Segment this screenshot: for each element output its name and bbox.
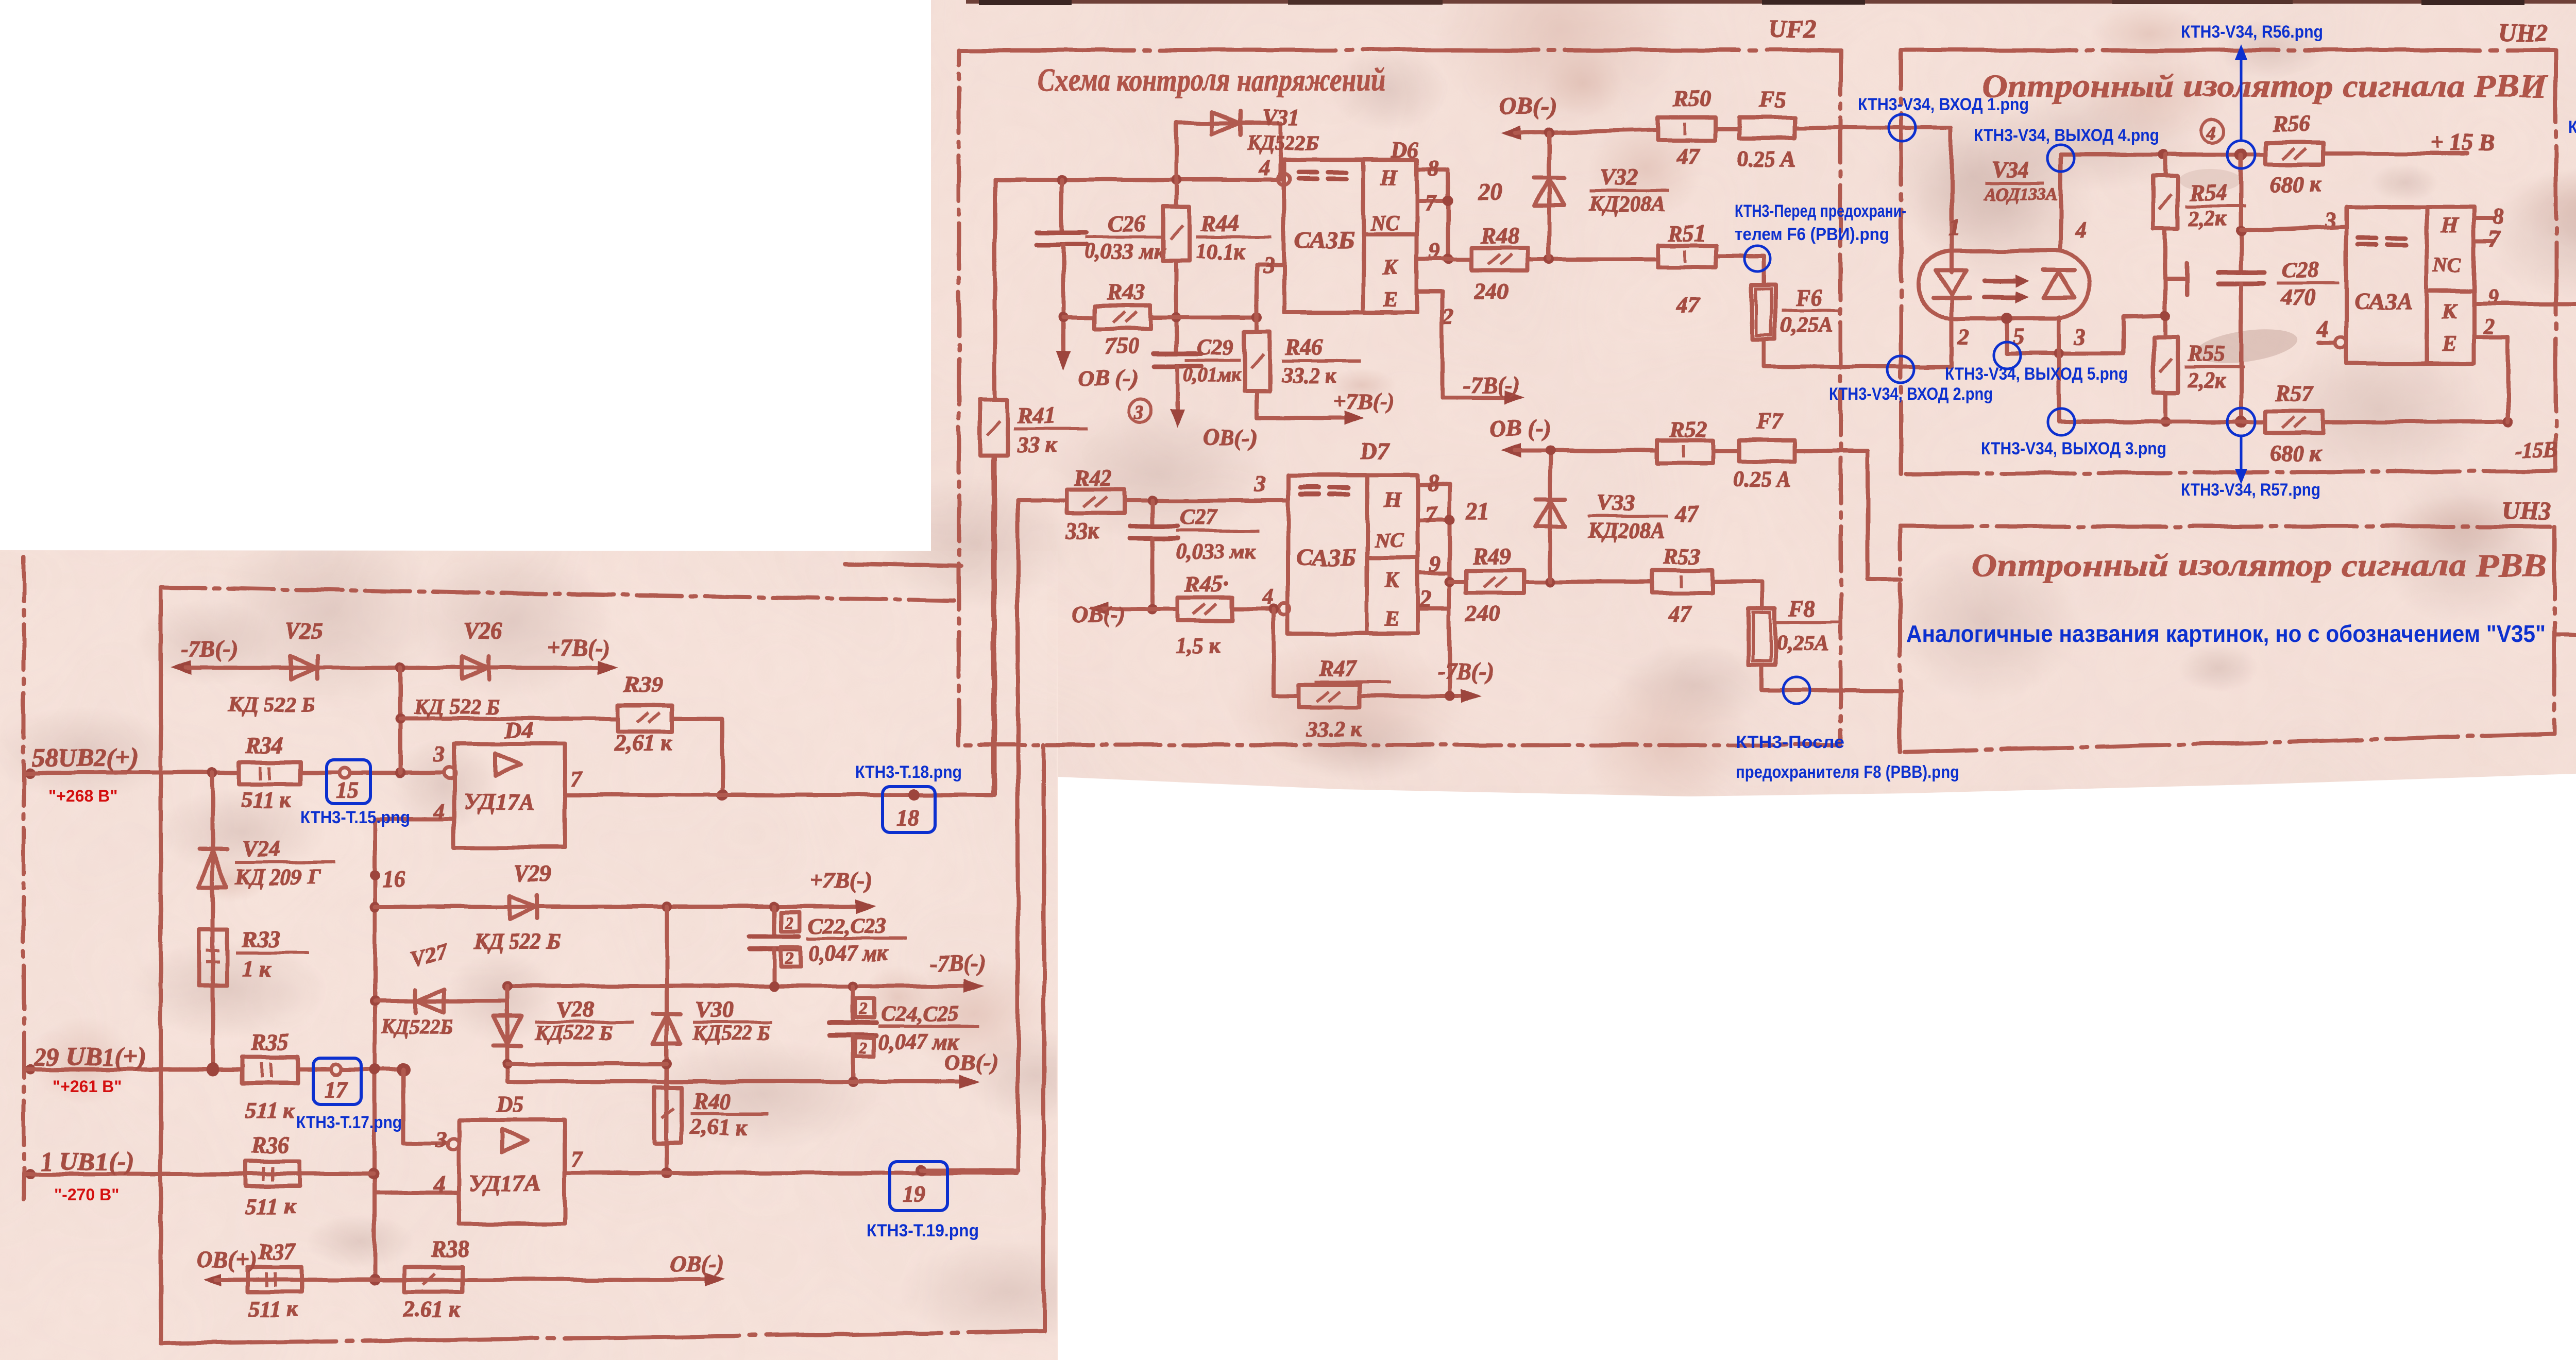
svg-text:D4: D4 [505, 718, 533, 743]
svg-text:33.2 к: 33.2 к [1281, 364, 1337, 387]
svg-text:2,61 к: 2,61 к [690, 1114, 748, 1140]
svg-text:R54: R54 [2189, 180, 2227, 205]
svg-text:V26: V26 [464, 618, 501, 643]
svg-text:3: 3 [2074, 324, 2086, 349]
svg-text:D6: D6 [1391, 137, 1419, 162]
svg-text:2,2к: 2,2к [2188, 207, 2228, 231]
svg-text:КД522Б: КД522Б [381, 1015, 453, 1038]
svg-text:Оптронный изолятор сигнала РВИ: Оптронный изолятор сигнала РВИ [1981, 69, 2548, 104]
svg-text:2: 2 [785, 913, 793, 932]
svg-text:R37: R37 [257, 1239, 296, 1264]
svg-text:3: 3 [1255, 471, 1266, 497]
svg-text:ОВ(-): ОВ(-) [1500, 93, 1556, 120]
svg-text:+7В(-): +7В(-) [1333, 389, 1395, 414]
svg-text:10.1к: 10.1к [1196, 240, 1246, 264]
svg-text:0,25А: 0,25А [1776, 632, 1829, 655]
svg-text:5: 5 [2012, 324, 2024, 349]
svg-text:4: 4 [1259, 155, 1270, 180]
svg-text:КД 522 Б: КД 522 Б [473, 930, 561, 954]
svg-text:R48: R48 [1481, 223, 1519, 248]
svg-text:33 к: 33 к [1017, 432, 1058, 457]
svg-text:R47: R47 [1318, 656, 1357, 681]
svg-text:0,033 мк: 0,033 мк [1176, 540, 1257, 564]
svg-text:F7: F7 [1755, 409, 1783, 434]
svg-text:V24: V24 [242, 836, 280, 861]
svg-text:Оптронный изолятор сигнала РВВ: Оптронный изолятор сигнала РВВ [1971, 548, 2547, 583]
svg-text:СА3Б: СА3Б [1296, 544, 1357, 571]
svg-text:511 к: 511 к [248, 1297, 299, 1322]
svg-text:КТН3-Т.18.png: КТН3-Т.18.png [855, 762, 962, 782]
svg-text:240: 240 [1474, 279, 1509, 304]
svg-text:R56: R56 [2272, 111, 2310, 136]
svg-text:КТН3-V34, ВХОД 1.png: КТН3-V34, ВХОД 1.png [1858, 95, 2029, 114]
svg-text:F5: F5 [1758, 87, 1785, 112]
svg-text:КД522Б: КД522Б [1246, 131, 1319, 154]
svg-text:750: 750 [1105, 333, 1139, 359]
svg-text:2,61 к: 2,61 к [615, 730, 673, 755]
svg-text:ОВ(+): ОВ(+) [197, 1247, 257, 1272]
svg-text:2: 2 [859, 1038, 868, 1057]
svg-text:КТН3-ВЫХОД 16 - РВИ.png: КТН3-ВЫХОД 16 - РВИ.png [2568, 117, 2576, 137]
svg-text:С24,С25: С24,С25 [881, 1002, 959, 1026]
svg-text:4: 4 [433, 799, 445, 824]
svg-text:NC: NC [2432, 253, 2462, 277]
svg-text:КТН3-Перед предохрани-: КТН3-Перед предохрани- [1735, 201, 1906, 221]
svg-text:0.25 А: 0.25 А [1737, 147, 1795, 171]
svg-text:2.61 к: 2.61 к [403, 1297, 461, 1322]
svg-text:16: 16 [382, 866, 405, 891]
svg-text:29 UB1(+): 29 UB1(+) [33, 1042, 147, 1071]
svg-text:V33: V33 [1597, 490, 1635, 515]
svg-text:3: 3 [1263, 253, 1275, 278]
svg-text:33к: 33к [1065, 518, 1100, 543]
svg-text:R53: R53 [1663, 543, 1701, 569]
svg-text:R35: R35 [251, 1030, 289, 1055]
svg-text:К: К [1382, 256, 1398, 279]
svg-text:R55: R55 [2187, 341, 2225, 366]
svg-text:R39: R39 [624, 672, 662, 698]
svg-text:7: 7 [1425, 190, 1437, 215]
svg-text:-7В(-): -7В(-) [1463, 372, 1520, 398]
svg-text:3: 3 [435, 1127, 447, 1152]
svg-text:КТН3-V34, R57.png: КТН3-V34, R57.png [2181, 480, 2320, 500]
svg-text:КД 522 Б: КД 522 Б [228, 693, 315, 717]
svg-text:КТН3-После: КТН3-После [1736, 733, 1844, 752]
svg-text:ОВ (-): ОВ (-) [1489, 415, 1551, 441]
svg-text:0,033 мк: 0,033 мк [1085, 240, 1166, 264]
svg-text:R36: R36 [251, 1133, 289, 1158]
svg-text:511 к: 511 к [245, 1098, 296, 1123]
svg-text:V28: V28 [556, 997, 594, 1022]
svg-text:КТН3-V34, ВЫХОД 4.png: КТН3-V34, ВЫХОД 4.png [1974, 126, 2159, 145]
svg-text:D5: D5 [496, 1092, 524, 1117]
svg-text:15: 15 [336, 777, 359, 803]
svg-text:-7В(-): -7В(-) [929, 950, 986, 976]
svg-text:+ 15 В: + 15 В [2431, 129, 2496, 156]
svg-text:58UB2(+): 58UB2(+) [32, 743, 138, 772]
svg-text:К: К [2442, 300, 2458, 324]
svg-text:V29: V29 [514, 861, 551, 886]
svg-text:2: 2 [1419, 586, 1431, 611]
svg-text:17: 17 [325, 1077, 348, 1102]
svg-text:4: 4 [433, 1172, 445, 1197]
svg-text:КТН3-Т.19.png: КТН3-Т.19.png [867, 1221, 979, 1240]
svg-text:F6: F6 [1794, 285, 1821, 310]
svg-text:7: 7 [571, 1146, 583, 1171]
svg-text:4: 4 [2075, 217, 2087, 242]
svg-text:КД522 Б: КД522 Б [535, 1021, 613, 1044]
svg-text:R38: R38 [431, 1237, 469, 1262]
svg-text:КД208А: КД208А [1587, 519, 1664, 543]
svg-text:8: 8 [1427, 156, 1438, 181]
svg-text:УД17А: УД17А [464, 789, 535, 815]
svg-text:1 к: 1 к [242, 957, 272, 982]
svg-text:Н: Н [1383, 489, 1401, 513]
svg-text:0.25 А: 0.25 А [1733, 468, 1791, 491]
svg-text:2: 2 [785, 948, 793, 967]
svg-text:R49: R49 [1472, 543, 1511, 569]
svg-text:Аналогичные названия картинок,: Аналогичные названия картинок, но с обоз… [1906, 620, 2546, 647]
svg-text:F8: F8 [1788, 596, 1815, 621]
svg-text:7: 7 [1425, 502, 1437, 528]
svg-text:R51: R51 [1668, 221, 1706, 246]
svg-text:3: 3 [1134, 402, 1144, 422]
svg-text:СА3А: СА3А [2354, 288, 2413, 314]
svg-text:R33: R33 [242, 927, 280, 952]
svg-text:-15В: -15В [2515, 439, 2558, 463]
svg-text:КД 209 Г: КД 209 Г [234, 865, 321, 889]
svg-text:UF2: UF2 [1768, 14, 1817, 43]
svg-text:1 UB1(-): 1 UB1(-) [40, 1147, 134, 1176]
svg-text:NC: NC [1374, 529, 1404, 552]
svg-text:47: 47 [1669, 601, 1693, 626]
svg-text:Схема контроля напряжений: Схема контроля напряжений [1038, 63, 1385, 98]
svg-text:2: 2 [2483, 314, 2495, 339]
svg-text:20: 20 [1478, 179, 1502, 205]
svg-text:240: 240 [1465, 601, 1500, 626]
svg-text:С29: С29 [1196, 334, 1234, 360]
svg-text:Е: Е [2442, 333, 2456, 356]
svg-text:21: 21 [1465, 498, 1489, 524]
svg-text:2: 2 [859, 1000, 868, 1018]
svg-text:С22,С23: С22,С23 [808, 915, 886, 939]
svg-text:+7В(-): +7В(-) [548, 635, 609, 660]
svg-text:4: 4 [2206, 123, 2216, 143]
svg-text:9: 9 [1429, 551, 1440, 576]
svg-text:-7В(-): -7В(-) [1437, 659, 1494, 684]
svg-text:Н: Н [1380, 166, 1398, 190]
svg-text:ОВ(-): ОВ(-) [944, 1049, 998, 1075]
svg-text:680 к: 680 к [2270, 172, 2322, 197]
svg-text:+7В(-): +7В(-) [810, 868, 872, 893]
svg-text:2: 2 [1957, 324, 1969, 349]
svg-text:С26: С26 [1108, 211, 1145, 236]
svg-text:АОД133А: АОД133А [1984, 185, 2058, 204]
svg-text:С27: С27 [1180, 504, 1218, 530]
svg-text:2,2к: 2,2к [2187, 369, 2227, 393]
svg-text:СА3Б: СА3Б [1294, 227, 1354, 254]
svg-text:КД 522 Б: КД 522 Б [414, 695, 501, 719]
svg-text:R34: R34 [244, 733, 282, 758]
svg-text:R50: R50 [1673, 86, 1711, 111]
svg-text:КД522 Б: КД522 Б [692, 1021, 770, 1044]
svg-text:4: 4 [2317, 316, 2329, 341]
svg-text:NC: NC [1370, 212, 1400, 235]
svg-text:-7В(-): -7В(-) [181, 636, 238, 661]
svg-text:7: 7 [571, 766, 583, 791]
svg-text:8: 8 [2493, 204, 2504, 229]
svg-text:D7: D7 [1361, 438, 1390, 464]
svg-text:47: 47 [1676, 292, 1701, 317]
svg-text:9: 9 [2487, 285, 2499, 310]
svg-text:680 к: 680 к [2270, 440, 2322, 466]
svg-text:1,5 к: 1,5 к [1175, 633, 1222, 658]
svg-text:19: 19 [903, 1181, 925, 1206]
svg-text:V25: V25 [285, 618, 323, 643]
svg-text:Е: Е [1385, 607, 1400, 631]
svg-text:R40: R40 [692, 1089, 731, 1114]
svg-text:телем F6 (РВИ).png: телем F6 (РВИ).png [1735, 225, 1889, 244]
svg-text:Н: Н [2441, 214, 2459, 238]
svg-text:8: 8 [1427, 470, 1438, 496]
svg-text:КД208А: КД208А [1589, 193, 1666, 216]
svg-text:С28: С28 [2281, 257, 2319, 282]
svg-text:R52: R52 [1669, 417, 1707, 442]
svg-text:предохранителя F8 (РВВ).png: предохранителя F8 (РВВ).png [1736, 762, 1959, 782]
svg-text:R42: R42 [1073, 465, 1111, 490]
svg-text:V34: V34 [1991, 157, 2029, 182]
svg-text:ОВ(-): ОВ(-) [670, 1251, 724, 1277]
svg-text:КТН3-V34, R56.png: КТН3-V34, R56.png [2181, 22, 2323, 42]
svg-text:КТН3-V34, ВЫХОД 5.png: КТН3-V34, ВЫХОД 5.png [1945, 364, 2128, 384]
svg-text:1: 1 [1948, 215, 1960, 240]
svg-text:V31: V31 [1262, 105, 1300, 130]
svg-text:R46: R46 [1285, 334, 1323, 360]
svg-text:Е: Е [1383, 288, 1398, 312]
svg-text:"+268 В": "+268 В" [48, 787, 117, 805]
svg-text:470: 470 [2281, 285, 2315, 310]
svg-text:К: К [1384, 569, 1400, 592]
svg-text:ОВ (-): ОВ (-) [1078, 365, 1138, 390]
svg-text:R57: R57 [2275, 381, 2314, 406]
svg-text:V30: V30 [696, 997, 733, 1022]
svg-text:33.2 к: 33.2 к [1307, 718, 1362, 742]
svg-text:ОВ(-): ОВ(-) [1203, 425, 1257, 450]
svg-text:511 к: 511 к [241, 787, 292, 812]
svg-text:КТН3-V34, ВХОД 2.png: КТН3-V34, ВХОД 2.png [1829, 384, 1993, 404]
svg-text:"-270 В": "-270 В" [54, 1185, 119, 1204]
svg-text:КТН3-Т.15.png: КТН3-Т.15.png [300, 808, 410, 827]
svg-text:"+261 В": "+261 В" [53, 1077, 122, 1096]
svg-text:3: 3 [433, 741, 445, 767]
svg-text:511 к: 511 к [245, 1194, 296, 1219]
svg-text:UH2: UH2 [2498, 20, 2548, 47]
svg-text:ОВ(-): ОВ(-) [1072, 602, 1126, 627]
svg-text:R43: R43 [1106, 280, 1144, 305]
svg-text:V32: V32 [1600, 164, 1637, 190]
svg-text:0,047 мк: 0,047 мк [808, 942, 889, 965]
svg-text:18: 18 [896, 805, 919, 830]
svg-text:R44: R44 [1200, 211, 1239, 236]
svg-text:UH3: UH3 [2502, 498, 2551, 525]
svg-text:КТН3-V34, ВЫХОД 3.png: КТН3-V34, ВЫХОД 3.png [1981, 439, 2166, 458]
svg-text:47: 47 [1676, 144, 1701, 169]
svg-text:0,25А: 0,25А [1781, 313, 1833, 337]
svg-text:R41: R41 [1017, 402, 1055, 428]
svg-text:0,01мк: 0,01мк [1183, 364, 1242, 386]
svg-text:УД17А: УД17А [469, 1170, 540, 1196]
svg-text:7: 7 [2488, 226, 2501, 251]
svg-text:47: 47 [1675, 501, 1699, 526]
svg-text:R45·: R45· [1184, 571, 1228, 597]
svg-text:КТН3-Т.17.png: КТН3-Т.17.png [296, 1113, 402, 1132]
